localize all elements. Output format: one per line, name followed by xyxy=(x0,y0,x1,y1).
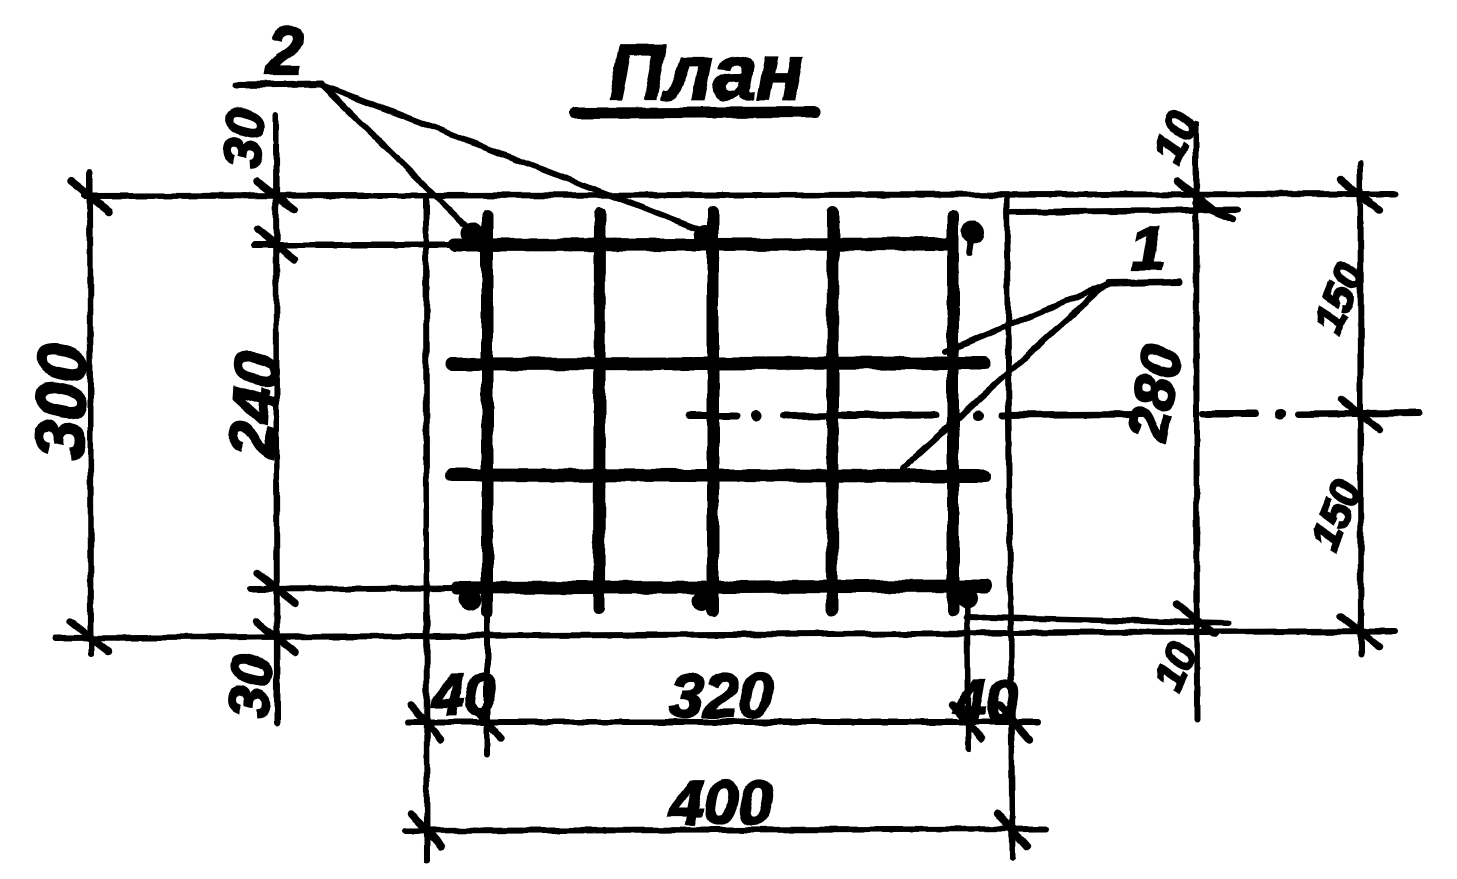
svg-text:320: 320 xyxy=(669,662,772,731)
svg-text:30: 30 xyxy=(213,107,277,171)
svg-text:40: 40 xyxy=(953,669,1019,734)
svg-text:2: 2 xyxy=(264,14,303,89)
svg-text:План: План xyxy=(608,28,803,116)
svg-text:400: 400 xyxy=(667,769,772,838)
svg-text:300: 300 xyxy=(21,342,102,460)
svg-text:1: 1 xyxy=(1131,214,1165,282)
svg-text:30: 30 xyxy=(216,652,285,721)
svg-text:40: 40 xyxy=(431,662,497,727)
svg-text:240: 240 xyxy=(216,350,293,461)
